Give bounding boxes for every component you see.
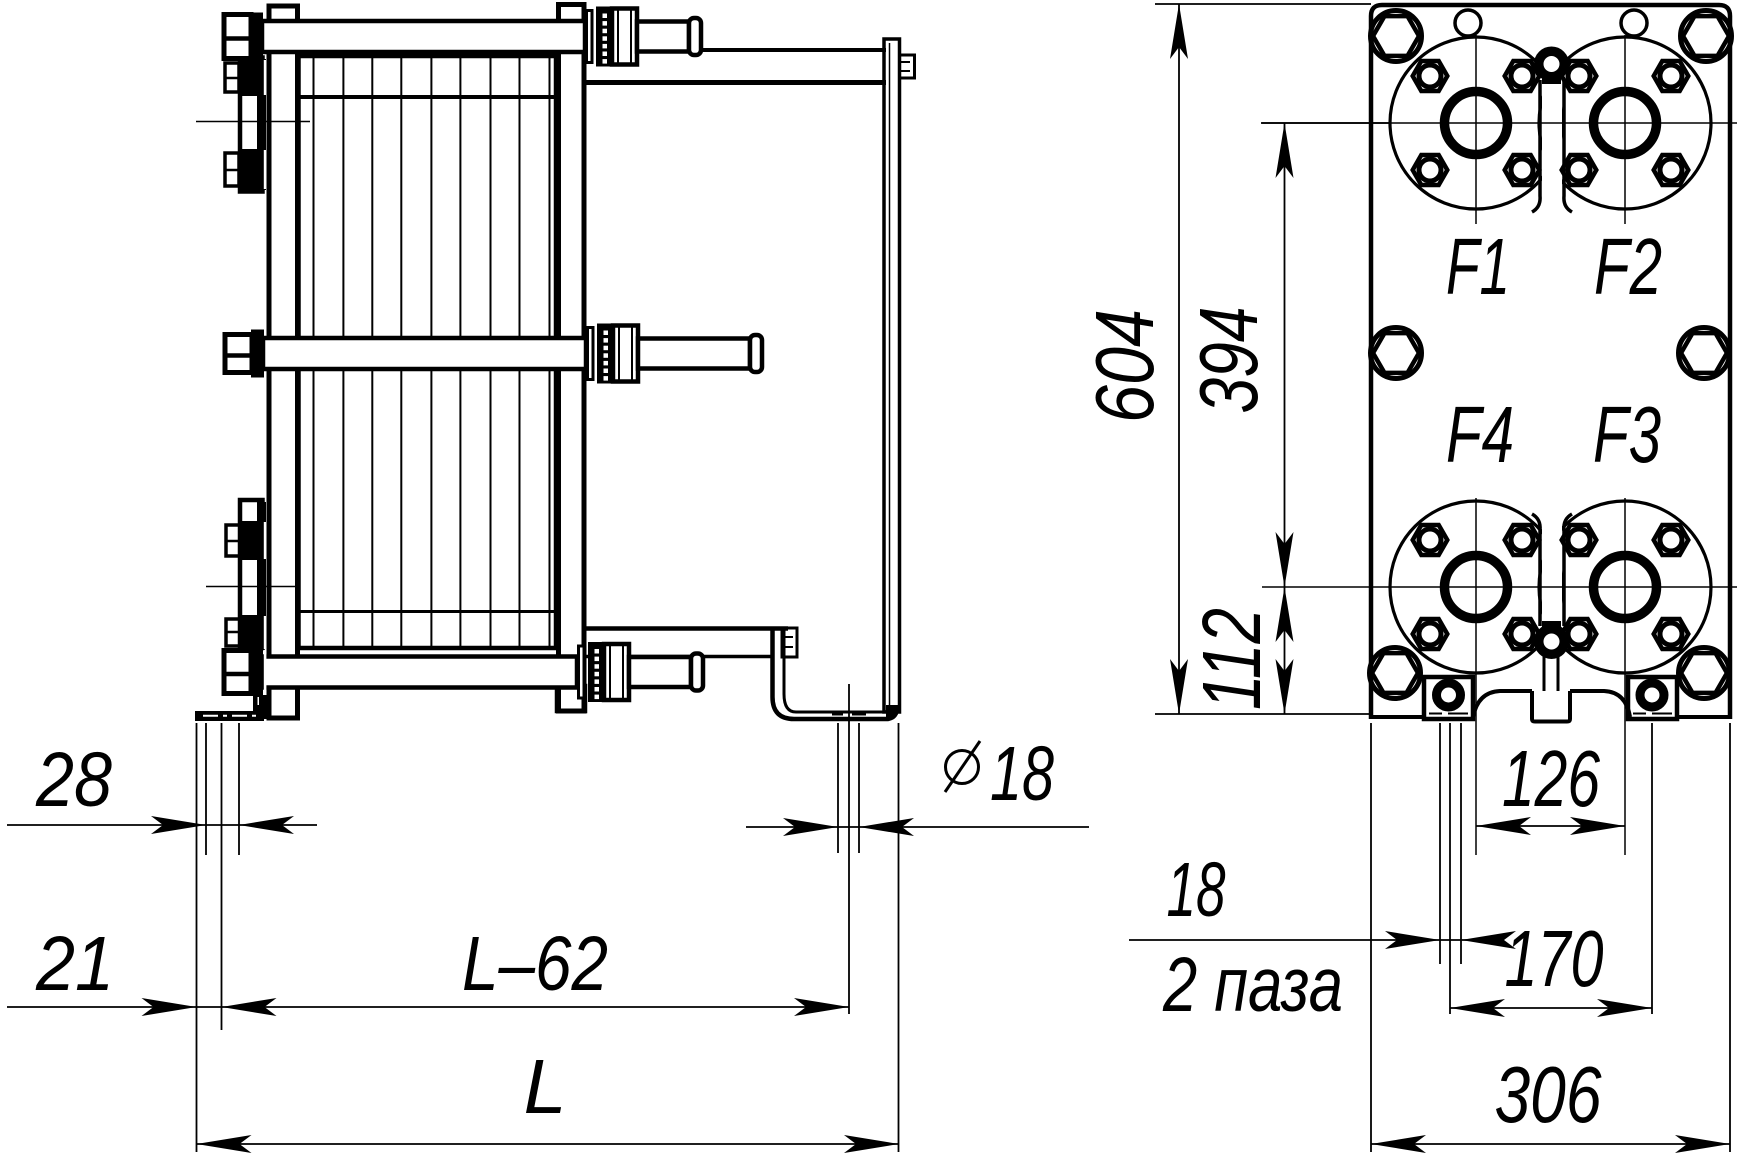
svg-text:112: 112 xyxy=(1185,608,1278,710)
svg-text:21: 21 xyxy=(35,921,114,1007)
svg-text:604: 604 xyxy=(1078,309,1171,423)
svg-text:126: 126 xyxy=(1502,734,1600,823)
svg-text:2 паза: 2 паза xyxy=(1162,942,1343,1028)
svg-text:F1: F1 xyxy=(1446,222,1510,311)
svg-text:394: 394 xyxy=(1182,307,1275,414)
svg-text:28: 28 xyxy=(35,737,112,823)
svg-text:L: L xyxy=(524,1044,567,1130)
svg-text:170: 170 xyxy=(1505,914,1604,1003)
svg-text:18: 18 xyxy=(1167,847,1226,933)
svg-text:306: 306 xyxy=(1495,1050,1602,1139)
svg-text:F3: F3 xyxy=(1593,390,1661,479)
svg-text:18: 18 xyxy=(990,731,1054,817)
svg-text:F2: F2 xyxy=(1594,222,1662,311)
svg-text:L–62: L–62 xyxy=(462,921,608,1007)
svg-text:F4: F4 xyxy=(1446,390,1514,479)
